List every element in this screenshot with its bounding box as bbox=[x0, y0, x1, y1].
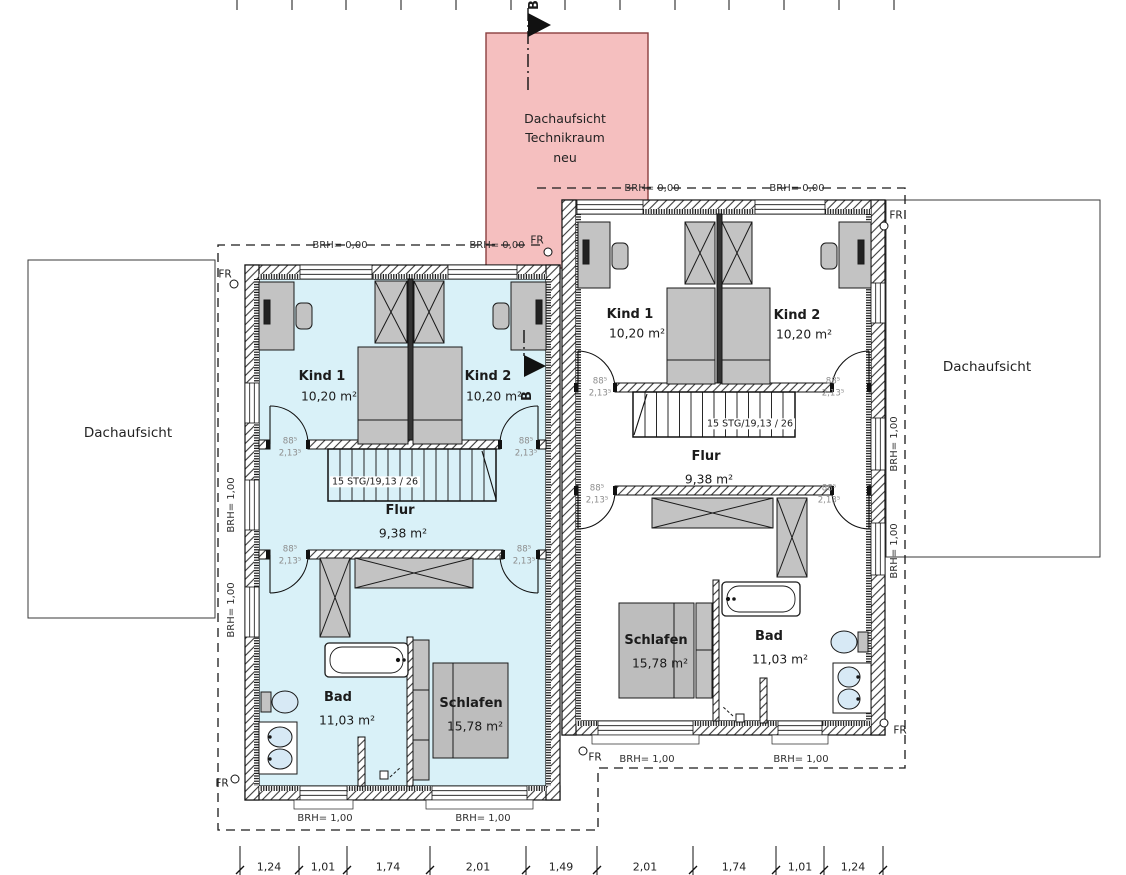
double-bed bbox=[619, 603, 694, 698]
wardrobe bbox=[652, 498, 773, 528]
wardrobe bbox=[722, 222, 752, 284]
wardrobe bbox=[355, 558, 473, 588]
monitor bbox=[264, 300, 270, 324]
desk-chair bbox=[493, 303, 509, 329]
bottom-dimension-ticks bbox=[236, 846, 887, 875]
monitor bbox=[858, 240, 864, 264]
double-bed bbox=[433, 663, 508, 758]
closet-strip bbox=[696, 603, 712, 698]
bed bbox=[722, 288, 770, 384]
bed bbox=[667, 288, 715, 384]
floorplan-drawing bbox=[0, 0, 1126, 875]
bathtub bbox=[722, 582, 800, 616]
wardrobe bbox=[685, 222, 715, 284]
roof-plan-left bbox=[28, 260, 215, 618]
toilet bbox=[261, 691, 298, 713]
double-sink bbox=[833, 663, 871, 713]
wardrobe bbox=[414, 281, 444, 343]
desk-chair bbox=[296, 303, 312, 329]
double-sink bbox=[259, 722, 297, 774]
monitor bbox=[536, 300, 542, 324]
bed bbox=[358, 347, 408, 444]
roof-plan-right bbox=[886, 200, 1100, 557]
desk-chair bbox=[821, 243, 837, 269]
toilet bbox=[831, 631, 868, 653]
closet-strip bbox=[413, 640, 429, 780]
floorplan-canvas: Dachaufsicht Dachaufsicht Dachaufsicht T… bbox=[0, 0, 1126, 875]
desk bbox=[839, 222, 871, 288]
wardrobe bbox=[375, 281, 407, 343]
wardrobe bbox=[320, 558, 350, 637]
monitor bbox=[583, 240, 589, 264]
bathtub bbox=[325, 643, 408, 677]
top-dimension-ticks bbox=[237, 0, 894, 10]
desk-chair bbox=[612, 243, 628, 269]
wardrobe bbox=[777, 498, 807, 577]
bed bbox=[413, 347, 462, 444]
